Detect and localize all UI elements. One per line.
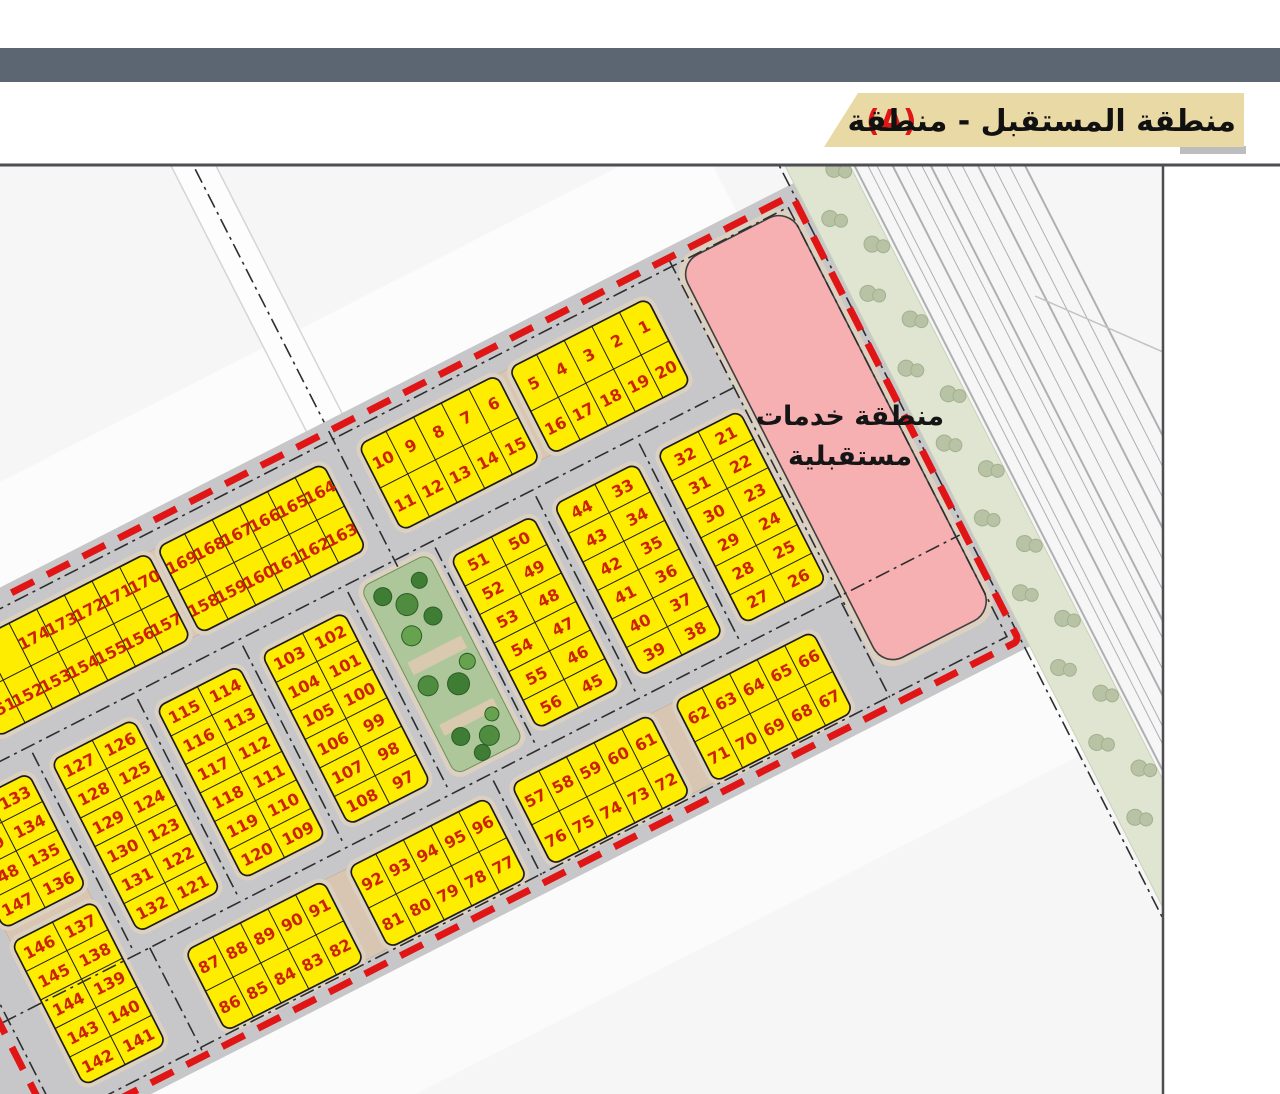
title-banner-shadow xyxy=(1180,146,1246,154)
plan-page: 5432116171819201098761112131415169168167… xyxy=(0,0,1280,1094)
map-right-margin xyxy=(1163,166,1280,1094)
title-text: منطقة المستقبل - منطقة xyxy=(848,104,1237,139)
services-area-label-line1: منطقة خدمات xyxy=(756,401,944,432)
title-banner: (A) منطقة المستقبل - منطقة xyxy=(824,93,1246,154)
services-area-label-line2: مستقبلية xyxy=(788,441,912,472)
top-bar xyxy=(0,48,1280,82)
plan-map: 5432116171819201098761112131415169168167… xyxy=(0,0,1280,1094)
